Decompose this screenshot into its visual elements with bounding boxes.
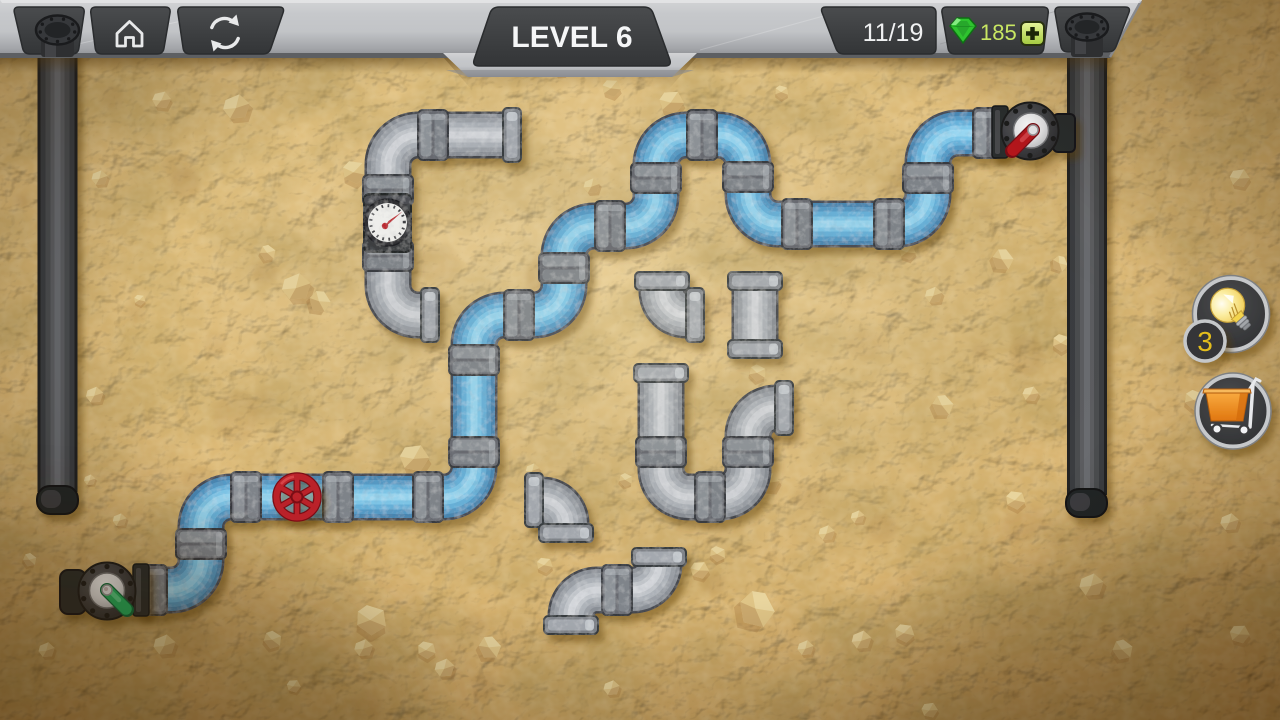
svg-text:LEVEL 6: LEVEL 6 [511, 21, 632, 54]
svg-text:11/19: 11/19 [863, 19, 924, 47]
svg-text:185: 185 [980, 20, 1017, 45]
svg-text:3: 3 [1197, 326, 1213, 357]
